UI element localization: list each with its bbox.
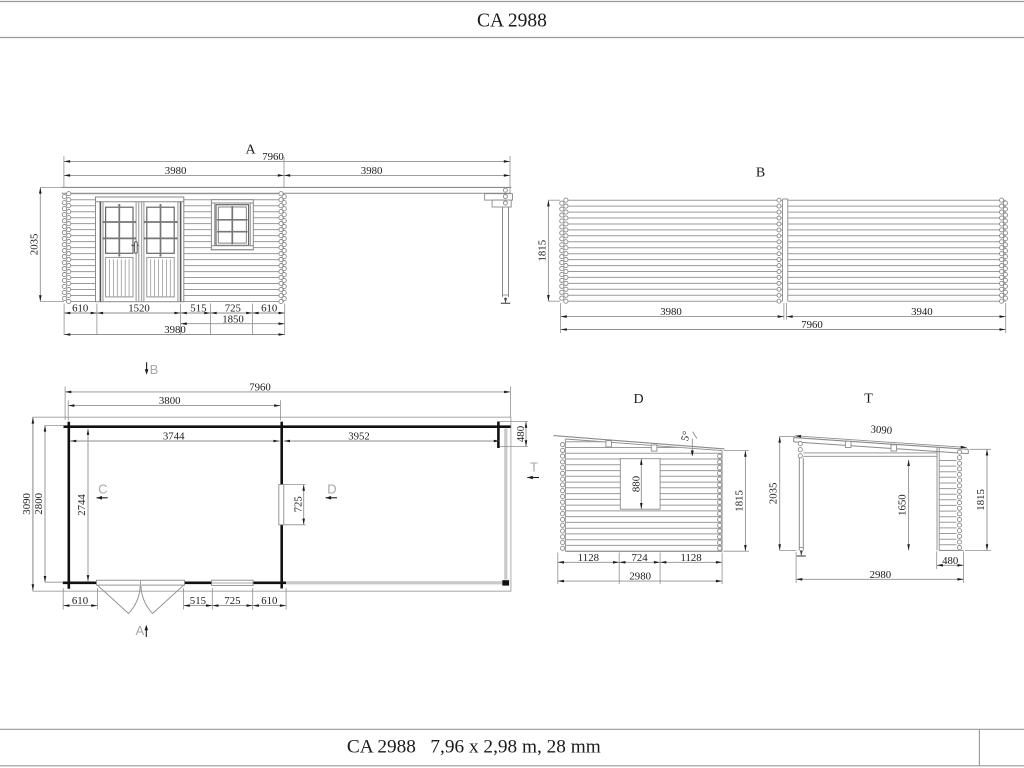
svg-text:3090: 3090 <box>21 493 33 515</box>
svg-text:880: 880 <box>630 476 642 492</box>
svg-text:CA 2988 7,96 x 2,98 m, 28 mm: CA 2988 7,96 x 2,98 m, 28 mm <box>347 737 601 758</box>
svg-text:3940: 3940 <box>911 306 933 318</box>
svg-text:1128: 1128 <box>578 552 599 564</box>
svg-text:610: 610 <box>72 303 88 315</box>
svg-text:1815: 1815 <box>975 489 987 511</box>
svg-text:3980: 3980 <box>660 306 682 318</box>
svg-text:1850: 1850 <box>222 313 244 325</box>
svg-text:CA 2988: CA 2988 <box>477 11 547 32</box>
svg-text:7960: 7960 <box>249 381 271 393</box>
svg-text:T: T <box>864 392 873 407</box>
svg-text:1815: 1815 <box>733 490 745 512</box>
svg-text:2800: 2800 <box>33 493 45 515</box>
svg-text:1128: 1128 <box>680 552 701 564</box>
svg-text:610: 610 <box>261 595 277 607</box>
svg-text:3800: 3800 <box>159 395 181 407</box>
svg-text:3980: 3980 <box>165 165 187 177</box>
svg-text:725: 725 <box>293 496 305 512</box>
svg-text:1650: 1650 <box>897 494 909 516</box>
svg-text:610: 610 <box>72 595 88 607</box>
svg-text:3980: 3980 <box>361 165 383 177</box>
svg-text:725: 725 <box>224 595 240 607</box>
svg-text:515: 515 <box>190 595 206 607</box>
svg-text:2980: 2980 <box>629 571 651 583</box>
svg-text:A: A <box>245 143 256 158</box>
svg-text:1520: 1520 <box>128 303 150 315</box>
svg-text:2744: 2744 <box>76 494 88 516</box>
svg-text:7960: 7960 <box>262 151 284 163</box>
svg-text:B: B <box>150 362 159 377</box>
svg-text:480: 480 <box>942 555 958 567</box>
svg-text:1815: 1815 <box>536 240 548 262</box>
svg-text:724: 724 <box>631 552 648 564</box>
svg-text:610: 610 <box>261 303 277 315</box>
svg-text:480: 480 <box>515 426 527 442</box>
svg-text:2035: 2035 <box>28 234 40 256</box>
svg-text:7960: 7960 <box>801 319 823 331</box>
svg-text:3980: 3980 <box>164 324 186 336</box>
svg-text:515: 515 <box>190 303 206 315</box>
svg-text:2980: 2980 <box>870 569 892 581</box>
svg-text:B: B <box>756 166 765 181</box>
svg-text:3952: 3952 <box>348 431 370 443</box>
svg-text:C: C <box>98 481 107 496</box>
svg-text:3090: 3090 <box>870 424 892 437</box>
svg-text:2035: 2035 <box>768 483 780 505</box>
svg-text:T: T <box>530 459 538 474</box>
svg-text:D: D <box>633 392 643 407</box>
svg-text:D: D <box>327 481 336 496</box>
svg-text:A: A <box>135 623 144 638</box>
svg-text:3744: 3744 <box>163 431 185 443</box>
